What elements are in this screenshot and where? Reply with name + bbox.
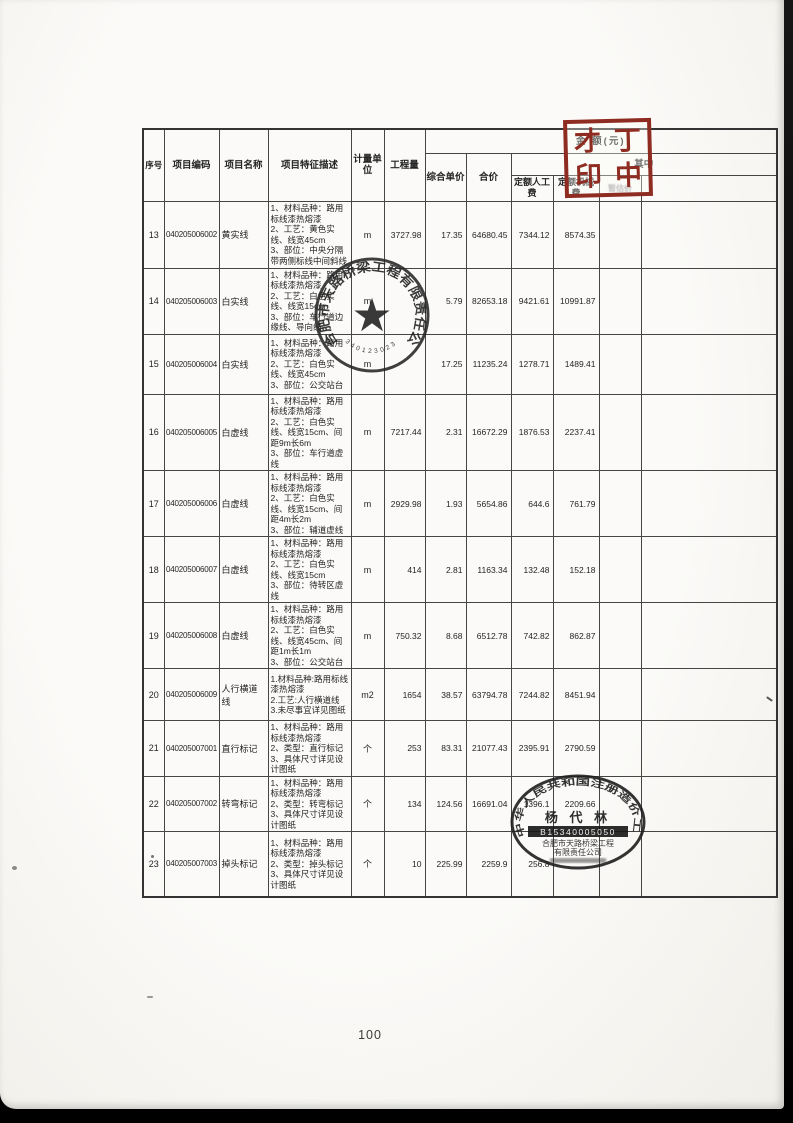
cell-unit_price: 2.81 bbox=[425, 537, 466, 603]
cell-seq: 19 bbox=[143, 603, 164, 669]
cell-total: 5654.86 bbox=[466, 471, 511, 537]
scanned-page: 序号 项目编码 项目名称 项目特征描述 计量单位 工程量 金 额(元) 综合单价… bbox=[0, 0, 793, 1123]
feature-line: 2、工艺：白色实线、线宽15cm bbox=[271, 559, 349, 580]
table-row: 17040205006006白虚线1、材料品种：路用标线漆热熔漆2、工艺：白色实… bbox=[143, 471, 777, 537]
cell-unit_price: 83.31 bbox=[425, 721, 466, 777]
cell-blank bbox=[641, 394, 777, 471]
cell-machine: 10991.87 bbox=[553, 268, 599, 334]
cell-labor: 9421.61 bbox=[511, 268, 553, 334]
cell-total: 6512.78 bbox=[466, 603, 511, 669]
cell-quantity: 134 bbox=[384, 776, 425, 832]
bill-of-quantities-table: 序号 项目编码 项目名称 项目特征描述 计量单位 工程量 金 额(元) 综合单价… bbox=[142, 128, 778, 898]
cell-labor: 7344.12 bbox=[511, 201, 553, 268]
paper-sheet: 序号 项目编码 项目名称 项目特征描述 计量单位 工程量 金 额(元) 综合单价… bbox=[0, 0, 784, 1109]
feature-line: 1、材料品种：路用标线漆热熔漆 bbox=[271, 838, 349, 859]
cell-total: 82653.18 bbox=[466, 268, 511, 334]
cell-labor: 132.48 bbox=[511, 537, 553, 603]
cell-quantity: 253 bbox=[384, 721, 425, 777]
feature-line: 3、具体尺寸详见设计图纸 bbox=[271, 869, 349, 890]
feature-line: 1、材料品种：路用标线漆热熔漆 bbox=[271, 396, 349, 417]
cell-machine: 8451.94 bbox=[553, 669, 599, 721]
scan-speck bbox=[147, 996, 153, 998]
cell-features: 1、材料品种：路用标线漆热熔漆2、工艺：白色实线、线宽15cm3、部位：待转区虚… bbox=[268, 537, 351, 603]
cell-name: 白实线 bbox=[219, 268, 268, 334]
cell-unit_price: 8.68 bbox=[425, 603, 466, 669]
cell-labor: 7244.82 bbox=[511, 669, 553, 721]
cell-prov bbox=[599, 471, 641, 537]
cell-machine: 152.18 bbox=[553, 537, 599, 603]
cell-seq: 22 bbox=[143, 776, 164, 832]
cell-name: 白虚线 bbox=[219, 537, 268, 603]
scan-speck bbox=[12, 866, 17, 870]
feature-line: 1、材料品种：路用标线漆热熔漆 bbox=[271, 203, 349, 224]
cell-features: 1.材料品种:路用标线漆热熔漆2.工艺:人行横道线3.未尽事宜详见图纸 bbox=[268, 669, 351, 721]
feature-line: 1、材料品种：路用标线漆热熔漆 bbox=[271, 778, 349, 799]
table-row: 22040205007002转弯标记1、材料品种：路用标线漆热熔漆2、类型：转弯… bbox=[143, 776, 777, 832]
header-name: 项目名称 bbox=[219, 129, 268, 201]
cell-labor: 742.82 bbox=[511, 603, 553, 669]
cell-features: 1、材料品种：路用标线漆热熔漆2、工艺：白色实线、线宽15cm、间距4m长2m3… bbox=[268, 471, 351, 537]
cell-code: 040205006003 bbox=[164, 268, 219, 334]
cell-prov bbox=[599, 537, 641, 603]
cell-name: 直行标记 bbox=[219, 721, 268, 777]
scan-speck bbox=[151, 855, 154, 858]
cell-name: 白实线 bbox=[219, 334, 268, 394]
header-labor: 定额人工费 bbox=[511, 175, 553, 201]
cell-seq: 23 bbox=[143, 832, 164, 897]
table-header: 序号 项目编码 项目名称 项目特征描述 计量单位 工程量 金 额(元) 综合单价… bbox=[143, 129, 777, 201]
cell-features: 1、材料品种：路用标线漆热熔漆2、类型：直行标记3、具体尺寸详见设计图纸 bbox=[268, 721, 351, 777]
header-unit: 计量单位 bbox=[351, 129, 384, 201]
cell-blank bbox=[641, 268, 777, 334]
cell-unit_price: 225.99 bbox=[425, 832, 466, 897]
table-row: 20040205006009人行横道线1.材料品种:路用标线漆热熔漆2.工艺:人… bbox=[143, 669, 777, 721]
header-seq: 序号 bbox=[143, 129, 164, 201]
feature-line: 3、部位：待转区虚线 bbox=[271, 580, 349, 601]
cell-unit_price: 1.93 bbox=[425, 471, 466, 537]
cell-quantity: 1654 bbox=[384, 669, 425, 721]
star-icon: ★ bbox=[351, 289, 392, 341]
print-stamp-char: 才 bbox=[574, 127, 602, 156]
cell-unit: 个 bbox=[351, 776, 384, 832]
cell-machine: 2237.41 bbox=[553, 394, 599, 471]
bill-table-wrapper: 序号 项目编码 项目名称 项目特征描述 计量单位 工程量 金 额(元) 综合单价… bbox=[142, 128, 778, 898]
cell-blank bbox=[641, 471, 777, 537]
cell-code: 040205007001 bbox=[164, 721, 219, 777]
feature-line: 1、材料品种：路用标线漆热熔漆 bbox=[271, 604, 349, 625]
feature-line: 1.材料品种:路用标线漆热熔漆 bbox=[271, 674, 349, 695]
cell-labor: 644.6 bbox=[511, 471, 553, 537]
cell-machine: 1489.41 bbox=[553, 334, 599, 394]
table-row: 19040205006008白虚线1、材料品种：路用标线漆热熔漆2、工艺：白色实… bbox=[143, 603, 777, 669]
header-blank bbox=[641, 175, 777, 201]
cell-unit: m bbox=[351, 603, 384, 669]
cell-code: 040205007003 bbox=[164, 832, 219, 897]
table-row: 13040205006002黄实线1、材料品种：路用标线漆热熔漆2、工艺：黄色实… bbox=[143, 201, 777, 268]
cell-quantity: 2929.98 bbox=[384, 471, 425, 537]
print-stamp-char: 中 bbox=[615, 161, 643, 190]
cell-prov bbox=[599, 268, 641, 334]
cell-name: 黄实线 bbox=[219, 201, 268, 268]
cell-features: 1、材料品种：路用标线漆热熔漆2、工艺：白色实线、线宽45cm、间距1m长1m3… bbox=[268, 603, 351, 669]
feature-line: 2、工艺：白色实线、线宽15cm、间距4m长2m bbox=[271, 493, 349, 525]
cell-seq: 21 bbox=[143, 721, 164, 777]
table-body: 13040205006002黄实线1、材料品种：路用标线漆热熔漆2、工艺：黄色实… bbox=[143, 201, 777, 897]
cell-unit_price: 2.31 bbox=[425, 394, 466, 471]
table-row: 16040205006005白虚线1、材料品种：路用标线漆热熔漆2、工艺：白色实… bbox=[143, 394, 777, 471]
cell-code: 040205006008 bbox=[164, 603, 219, 669]
feature-line: 1、材料品种：路用标线漆热熔漆 bbox=[271, 722, 349, 743]
feature-line: 2、类型：掉头标记 bbox=[271, 859, 349, 870]
cell-unit: m bbox=[351, 394, 384, 471]
cell-prov bbox=[599, 669, 641, 721]
feature-line: 2、工艺：白色实线、线宽45cm、间距1m长1m bbox=[271, 625, 349, 657]
cell-total: 16672.29 bbox=[466, 394, 511, 471]
cell-blank bbox=[641, 334, 777, 394]
cell-blank bbox=[641, 201, 777, 268]
cell-code: 040205006006 bbox=[164, 471, 219, 537]
feature-line: 1、材料品种：路用标线漆热熔漆 bbox=[271, 472, 349, 493]
feature-line: 3.未尽事宜详见图纸 bbox=[271, 705, 349, 716]
feature-line: 2、工艺：黄色实线、线宽45cm bbox=[271, 224, 349, 245]
table-row: 14040205006003白实线1、材料品种：路用标线漆热熔漆2、工艺：白色实… bbox=[143, 268, 777, 334]
cell-features: 1、材料品种：路用标线漆热熔漆2、工艺：白色实线、线宽15cm、间距9m长6m3… bbox=[268, 394, 351, 471]
cell-code: 040205006002 bbox=[164, 201, 219, 268]
cell-name: 白虚线 bbox=[219, 471, 268, 537]
header-unit-price: 综合单价 bbox=[425, 153, 466, 201]
cell-prov bbox=[599, 394, 641, 471]
engineer-seal-number: B15340005050 bbox=[540, 827, 616, 837]
cell-machine: 862.87 bbox=[553, 603, 599, 669]
cell-unit_price: 124.56 bbox=[425, 776, 466, 832]
cell-name: 白虚线 bbox=[219, 603, 268, 669]
cell-unit: m bbox=[351, 471, 384, 537]
cost-engineer-seal: 中华人民共和国注册造价工程师 杨 代 林 B15340005050 合肥市天路桥… bbox=[498, 764, 658, 884]
feature-line: 2.工艺:人行横道线 bbox=[271, 695, 349, 706]
cell-unit_price: 38.57 bbox=[425, 669, 466, 721]
cell-seq: 15 bbox=[143, 334, 164, 394]
cell-name: 转弯标记 bbox=[219, 776, 268, 832]
feature-line: 3、部位：公交站台 bbox=[271, 380, 349, 391]
cell-seq: 18 bbox=[143, 537, 164, 603]
table-row: 18040205006007白虚线1、材料品种：路用标线漆热熔漆2、工艺：白色实… bbox=[143, 537, 777, 603]
cell-blank bbox=[641, 721, 777, 777]
cell-total: 1163.34 bbox=[466, 537, 511, 603]
cell-code: 040205006004 bbox=[164, 334, 219, 394]
header-total-price: 合价 bbox=[466, 153, 511, 201]
cell-quantity: 7217.44 bbox=[384, 394, 425, 471]
cell-quantity: 750.32 bbox=[384, 603, 425, 669]
cell-code: 040205007002 bbox=[164, 776, 219, 832]
red-print-stamp: 才 丁 印 中 bbox=[563, 118, 653, 198]
header-features: 项目特征描述 bbox=[268, 129, 351, 201]
cell-quantity: 414 bbox=[384, 537, 425, 603]
cell-seq: 20 bbox=[143, 669, 164, 721]
feature-line: 1、材料品种：路用标线漆热熔漆 bbox=[271, 538, 349, 559]
header-quantity: 工程量 bbox=[384, 129, 425, 201]
engineer-org-line2: 有限责任公司 bbox=[554, 847, 602, 857]
cell-total: 63794.78 bbox=[466, 669, 511, 721]
feature-line: 3、部位：车行道虚线 bbox=[271, 448, 349, 469]
feature-line: 3、部位：公交站台 bbox=[271, 657, 349, 668]
cell-name: 白虚线 bbox=[219, 394, 268, 471]
company-round-seal: 合肥市天路桥梁工程有限责任公司 ★ 3401230235520 bbox=[307, 250, 437, 380]
feature-line: 2、类型：直行标记 bbox=[271, 743, 349, 754]
engineer-name: 杨 代 林 bbox=[545, 810, 611, 825]
cell-seq: 14 bbox=[143, 268, 164, 334]
cell-labor: 1278.71 bbox=[511, 334, 553, 394]
feature-line: 3、具体尺寸详见设计图纸 bbox=[271, 754, 349, 775]
header-code: 项目编码 bbox=[164, 129, 219, 201]
page-number: 100 bbox=[340, 1028, 400, 1042]
cell-unit: 个 bbox=[351, 832, 384, 897]
cell-name: 人行横道线 bbox=[219, 669, 268, 721]
cell-features: 1、材料品种：路用标线漆热熔漆2、类型：掉头标记3、具体尺寸详见设计图纸 bbox=[268, 832, 351, 897]
cell-total: 11235.24 bbox=[466, 334, 511, 394]
cell-seq: 13 bbox=[143, 201, 164, 268]
cell-features: 1、材料品种：路用标线漆热熔漆2、类型：转弯标记3、具体尺寸详见设计图纸 bbox=[268, 776, 351, 832]
cell-machine: 761.79 bbox=[553, 471, 599, 537]
feature-line: 2、工艺：白色实线、线宽15cm、间距9m长6m bbox=[271, 417, 349, 449]
cell-seq: 16 bbox=[143, 394, 164, 471]
cell-blank bbox=[641, 669, 777, 721]
table-row: 23040205007003掉头标记1、材料品种：路用标线漆热熔漆2、类型：掉头… bbox=[143, 832, 777, 897]
feature-line: 3、部位：辅道虚线 bbox=[271, 525, 349, 536]
table-row: 15040205006004白实线1、材料品种：路用标线漆热熔漆2、工艺：白色实… bbox=[143, 334, 777, 394]
print-stamp-char: 印 bbox=[575, 162, 603, 191]
cell-blank bbox=[641, 537, 777, 603]
cell-code: 040205006009 bbox=[164, 669, 219, 721]
table-row: 21040205007001直行标记1、材料品种：路用标线漆热熔漆2、类型：直行… bbox=[143, 721, 777, 777]
engineer-org-line1: 合肥市天路桥梁工程 bbox=[542, 838, 614, 848]
feature-line: 2、类型：转弯标记 bbox=[271, 799, 349, 810]
cell-quantity: 10 bbox=[384, 832, 425, 897]
cell-prov bbox=[599, 603, 641, 669]
cell-prov bbox=[599, 201, 641, 268]
cell-labor: 1876.53 bbox=[511, 394, 553, 471]
print-stamp-char: 丁 bbox=[614, 126, 642, 155]
cell-code: 040205006005 bbox=[164, 394, 219, 471]
cell-total: 64680.45 bbox=[466, 201, 511, 268]
cell-seq: 17 bbox=[143, 471, 164, 537]
cell-machine: 8574.35 bbox=[553, 201, 599, 268]
cell-blank bbox=[641, 776, 777, 832]
cell-blank bbox=[641, 832, 777, 897]
cell-name: 掉头标记 bbox=[219, 832, 268, 897]
cell-unit: m bbox=[351, 537, 384, 603]
cell-unit: m2 bbox=[351, 669, 384, 721]
cell-unit: 个 bbox=[351, 721, 384, 777]
seal-smudged-line bbox=[550, 858, 606, 863]
cell-prov bbox=[599, 334, 641, 394]
feature-line: 3、具体尺寸详见设计图纸 bbox=[271, 809, 349, 830]
cell-code: 040205006007 bbox=[164, 537, 219, 603]
cell-blank bbox=[641, 603, 777, 669]
